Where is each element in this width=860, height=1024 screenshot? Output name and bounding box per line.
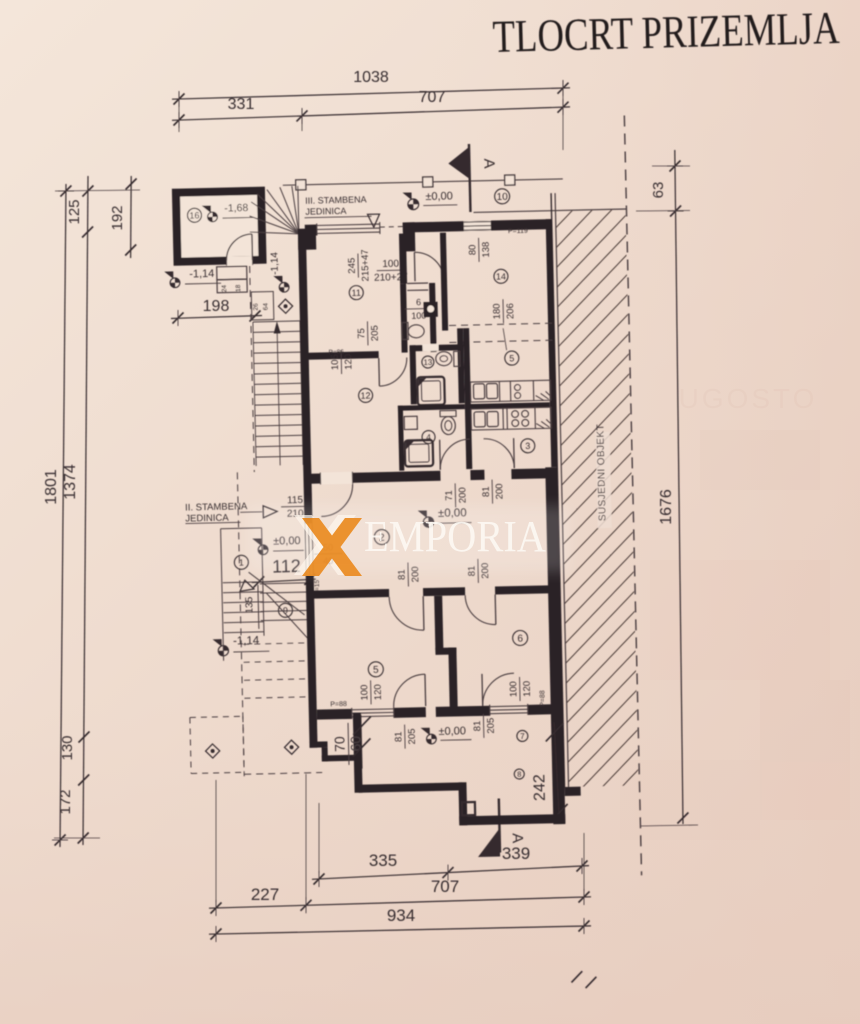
- svg-text:11: 11: [351, 288, 361, 298]
- svg-text:707: 707: [431, 877, 459, 896]
- svg-text:UGOSTO: UGOSTO: [679, 383, 818, 414]
- svg-text:138: 138: [481, 242, 492, 258]
- svg-text:200: 200: [494, 483, 505, 499]
- svg-text:75: 75: [356, 328, 367, 339]
- svg-text:205: 205: [485, 718, 496, 734]
- svg-text:245: 245: [346, 258, 357, 274]
- svg-text:205: 205: [370, 325, 381, 341]
- svg-text:120: 120: [373, 684, 384, 700]
- svg-text:12: 12: [360, 391, 370, 401]
- svg-text:III. STAMBENA: III. STAMBENA: [305, 194, 367, 205]
- svg-text:24: 24: [221, 285, 228, 293]
- svg-text:7: 7: [520, 732, 525, 741]
- svg-text:SUSJEDNI OBJEKT: SUSJEDNI OBJEKT: [595, 424, 608, 521]
- svg-text:P=119: P=119: [508, 228, 528, 235]
- svg-text:8: 8: [517, 770, 521, 779]
- svg-text:A: A: [480, 158, 497, 168]
- svg-text:125: 125: [66, 199, 83, 224]
- svg-text:81: 81: [393, 731, 404, 742]
- svg-text:200: 200: [457, 487, 468, 503]
- svg-text:II. STAMBENA: II. STAMBENA: [185, 501, 248, 513]
- svg-text:70: 70: [331, 736, 347, 752]
- svg-text:1038: 1038: [353, 69, 389, 86]
- svg-text:18: 18: [235, 284, 242, 292]
- svg-text:192: 192: [109, 205, 126, 230]
- svg-text:EMPORIA: EMPORIA: [364, 512, 546, 561]
- svg-text:-1,14: -1,14: [233, 635, 260, 648]
- svg-text:16: 16: [189, 210, 199, 220]
- svg-text:242: 242: [531, 774, 549, 801]
- svg-text:707: 707: [419, 89, 446, 106]
- svg-text:81: 81: [481, 486, 492, 497]
- svg-text:P=88: P=88: [539, 690, 546, 707]
- svg-text:P=86: P=86: [329, 349, 345, 356]
- svg-text:1676: 1676: [658, 489, 675, 525]
- svg-text:115: 115: [287, 495, 304, 506]
- svg-text:120: 120: [343, 354, 354, 370]
- svg-text:215+47: 215+47: [360, 249, 372, 281]
- svg-text:71: 71: [444, 490, 455, 501]
- svg-text:5: 5: [373, 665, 379, 676]
- svg-text:14: 14: [496, 271, 506, 281]
- svg-text:205: 205: [407, 728, 418, 744]
- svg-text:130: 130: [59, 735, 76, 760]
- svg-text:±0,00: ±0,00: [425, 190, 453, 203]
- svg-text:-1,68: -1,68: [224, 202, 248, 215]
- svg-text:5: 5: [509, 353, 514, 363]
- svg-text:6: 6: [517, 634, 523, 645]
- svg-text:80: 80: [467, 245, 478, 256]
- svg-text:6: 6: [416, 297, 421, 307]
- svg-text:934: 934: [387, 906, 415, 925]
- svg-text:1801: 1801: [43, 469, 60, 505]
- svg-text:±0,00: ±0,00: [438, 725, 466, 738]
- svg-text:172: 172: [57, 789, 74, 814]
- svg-text:135: 135: [244, 596, 255, 613]
- svg-text:26: 26: [252, 303, 259, 311]
- svg-text:64: 64: [262, 303, 269, 311]
- svg-text:198: 198: [203, 298, 230, 315]
- svg-text:3: 3: [525, 441, 530, 451]
- svg-text:100: 100: [359, 684, 370, 700]
- svg-text:335: 335: [369, 851, 397, 870]
- svg-text:227: 227: [251, 885, 279, 904]
- svg-text:13: 13: [423, 358, 433, 367]
- svg-text:TLOCRT PRIZEMLJA: TLOCRT PRIZEMLJA: [492, 2, 840, 62]
- svg-text:P=88: P=88: [330, 701, 347, 708]
- svg-text:81: 81: [472, 721, 483, 732]
- svg-text:100: 100: [508, 681, 519, 697]
- svg-text:105: 105: [330, 354, 341, 370]
- svg-text:100: 100: [382, 259, 399, 270]
- svg-text:331: 331: [228, 96, 255, 113]
- svg-text:A: A: [509, 833, 526, 843]
- svg-text:10: 10: [496, 192, 508, 203]
- svg-text:180: 180: [492, 303, 503, 319]
- svg-text:-1,14: -1,14: [189, 268, 214, 281]
- svg-text:JEDINICA: JEDINICA: [305, 206, 346, 217]
- svg-text:63: 63: [650, 182, 667, 199]
- svg-text:1: 1: [239, 557, 244, 567]
- svg-text:206: 206: [505, 303, 516, 319]
- svg-text:120: 120: [522, 681, 533, 697]
- svg-text:339: 339: [502, 844, 530, 863]
- svg-text:-1,14: -1,14: [269, 251, 281, 274]
- svg-text:1374: 1374: [62, 464, 79, 500]
